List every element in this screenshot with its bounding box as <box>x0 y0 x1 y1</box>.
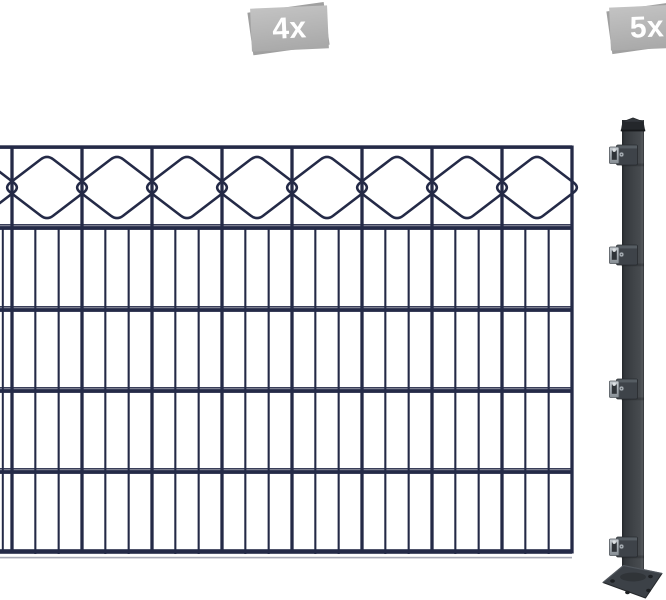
post-base-plate <box>603 566 662 599</box>
diamond-ornament <box>427 157 507 218</box>
diamond-ornament <box>7 157 87 218</box>
post-cap <box>621 118 645 132</box>
post-body <box>622 120 644 572</box>
fence-post <box>603 118 662 599</box>
fence-panel <box>0 145 577 558</box>
diamond-ornament <box>357 157 437 218</box>
quantity-badge-posts: 5x <box>610 6 666 49</box>
base-plate-hole <box>648 575 653 578</box>
base-plate-hole <box>625 591 630 594</box>
diamond-ornament <box>497 157 577 218</box>
diamond-ornament <box>147 157 227 218</box>
diamond-ornament <box>77 157 157 218</box>
diamond-ornament <box>217 157 297 218</box>
bracket-screw <box>613 541 616 544</box>
fence-scene <box>0 0 666 600</box>
bracket-screw <box>613 149 616 152</box>
base-plate-hole <box>646 589 651 592</box>
vertical-rods <box>2 146 574 555</box>
bracket-screw <box>613 249 616 252</box>
bracket-screw <box>613 383 616 386</box>
quantity-badge-label: 5x <box>629 10 665 45</box>
diamond-ornament <box>287 157 367 218</box>
badge-front-layer: 4x <box>250 5 329 51</box>
base-plate-hole <box>610 579 615 582</box>
product-image: 4x 5x <box>0 0 666 600</box>
quantity-badge-label: 4x <box>272 11 308 46</box>
ornament-diamond-row <box>0 157 577 218</box>
quantity-badge-panels: 4x <box>251 7 328 50</box>
badge-front-layer: 5x <box>609 4 666 50</box>
